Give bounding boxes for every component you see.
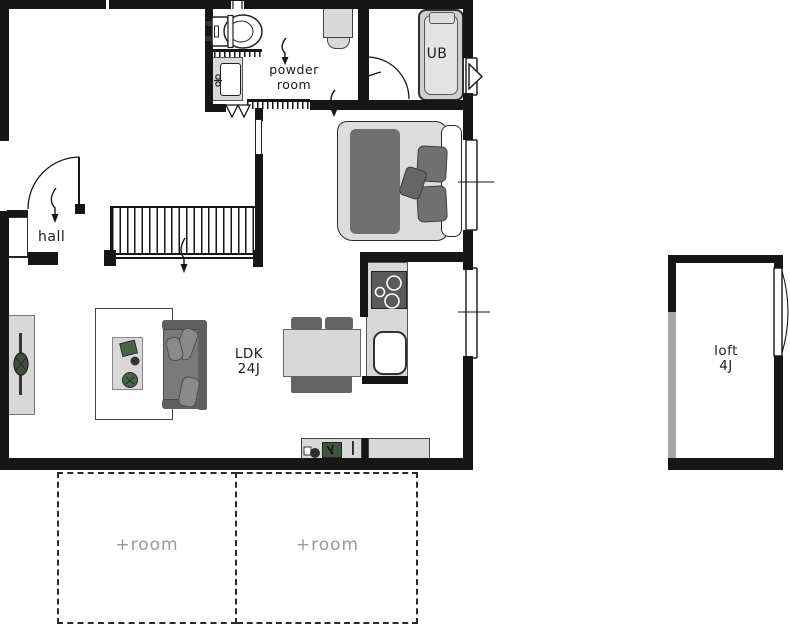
- laundry-unit: [323, 7, 353, 38]
- washbasin-bowl: [220, 63, 241, 96]
- ub-door: [367, 57, 409, 99]
- loft-label: loft 4J: [692, 344, 760, 374]
- powder-room-label: powder room: [255, 62, 333, 92]
- bedroom-window: [458, 140, 494, 230]
- dining-bench: [291, 376, 352, 393]
- bedroom-sliding-door: [255, 119, 262, 155]
- kitchen-sink: [373, 331, 407, 375]
- shoe-cabinet: [7, 217, 28, 258]
- wall-left-lower: [0, 211, 9, 470]
- loft-wall-left-upper: [668, 255, 676, 312]
- powder-sliding-door: [247, 99, 310, 109]
- wall-top-joint: [106, 0, 109, 9]
- wall-right-ldk-lower: [463, 356, 473, 470]
- floor-plan: powder room UB hall LDK 24J loft 4J +roo…: [0, 0, 790, 626]
- toilet-window-gap: [231, 1, 244, 9]
- ub-label: UB: [422, 46, 452, 62]
- stairs-rail-outer: [104, 253, 255, 255]
- loft-window: [774, 268, 788, 356]
- wall-left-upper: [0, 0, 9, 141]
- bed-blanket: [350, 129, 400, 234]
- loft-wall-top: [668, 255, 783, 263]
- stairs-treads: [112, 208, 254, 253]
- wall-desk-divider: [362, 438, 368, 468]
- wall-right-ub-upper: [463, 0, 473, 58]
- wall-kitchen-north: [362, 252, 473, 262]
- wall-powder-ub-divider: [358, 0, 369, 110]
- tv: [19, 333, 22, 395]
- desk-laptop: [322, 442, 342, 458]
- sofa-back: [198, 324, 207, 410]
- toilet-sliding-door: [209, 49, 262, 57]
- stairs-rail-inner: [104, 257, 255, 259]
- dining-table: [283, 329, 361, 377]
- wall-kitchen-west-stub: [360, 252, 368, 317]
- wall-counter-end: [362, 376, 408, 384]
- loft-wall-left-lower: [668, 312, 676, 458]
- toilet: [206, 15, 263, 48]
- bathtub-pillow: [429, 12, 455, 24]
- wall-entry-post: [75, 204, 85, 214]
- wall-washroom-south-west: [205, 104, 226, 112]
- ldk-window: [458, 268, 490, 358]
- optional-room-right-label: +room: [237, 535, 418, 555]
- wall-bedroom-west: [255, 154, 263, 265]
- optional-room-left-label: +room: [57, 535, 237, 555]
- dining-chair: [325, 317, 353, 330]
- hall-label: hall: [38, 229, 82, 245]
- wall-bottom: [0, 458, 473, 470]
- coffee-table: [112, 337, 143, 390]
- stairs-top-edge: [110, 206, 255, 208]
- wall-right-bedroom-lower: [463, 230, 473, 270]
- loft-wall-bottom: [668, 458, 783, 470]
- ub-window: [466, 58, 482, 95]
- stairs-left-edge: [110, 206, 113, 254]
- wall-ub-south: [368, 100, 473, 110]
- laundry-stool: [327, 37, 350, 49]
- wall-stair-post-left: [104, 250, 116, 266]
- wall-powder-south-east: [310, 100, 362, 110]
- wall-genkan-south: [28, 252, 58, 265]
- stove: [371, 271, 407, 309]
- wall-stair-post-right: [253, 250, 263, 267]
- loft-wall-right-bottom: [774, 356, 783, 460]
- loft-wall-right-top: [774, 255, 783, 269]
- dining-chair: [291, 317, 322, 330]
- ldk-label: LDK 24J: [221, 347, 277, 377]
- wall-entry-stub: [7, 210, 28, 217]
- entry-door: [28, 157, 79, 209]
